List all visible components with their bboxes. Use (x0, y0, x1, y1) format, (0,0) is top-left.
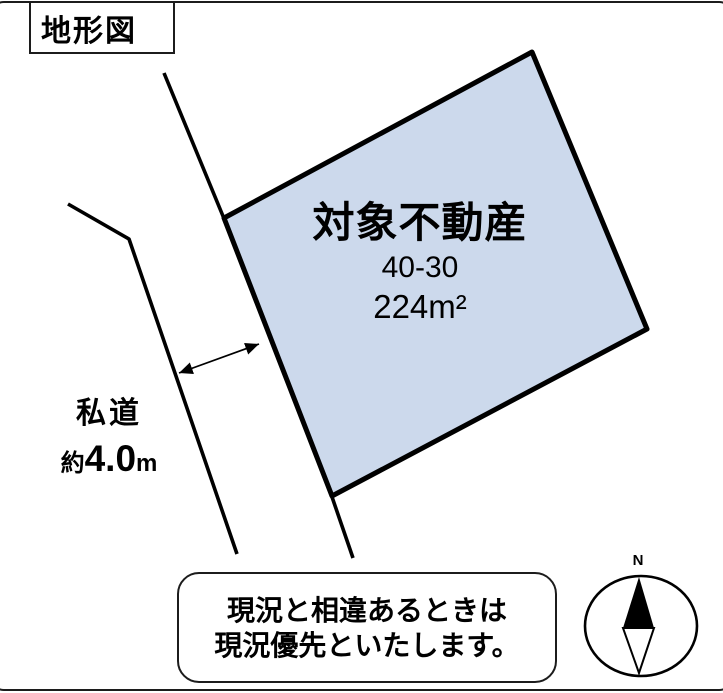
parcel-name: 対象不動産 (300, 202, 540, 244)
road-edge-left (68, 204, 237, 554)
road-width-label: 約4.0m (34, 440, 184, 477)
parcel-lot-number: 40-30 (300, 253, 540, 283)
road-edge-right-lower (331, 494, 353, 558)
compass-north-label: N (627, 552, 649, 569)
parcel-labels: 対象不動産 40-30 224m² (300, 202, 540, 323)
road-width-value: 4.0 (85, 438, 136, 479)
map-title: 地形図 (41, 6, 137, 50)
road-labels: 私道 約4.0m (34, 399, 184, 477)
road-name: 私道 (34, 399, 184, 429)
disclaimer-line2: 現況優先といたします。 (214, 628, 519, 663)
map-title-box: 地形図 (29, 1, 175, 54)
parcel-area-unit: m² (428, 288, 466, 325)
parcel-area-value: 224 (373, 288, 428, 325)
road-width-prefix: 約 (61, 450, 85, 477)
disclaimer-note-box: 現況と相違あるときは 現況優先といたします。 (177, 572, 557, 683)
road-width-unit: m (136, 450, 157, 477)
parcel-area: 224m² (300, 290, 540, 323)
disclaimer-line1: 現況と相違あるときは (227, 593, 507, 628)
road-edge-right-upper (164, 73, 225, 221)
land-shape-map: 地形図 対象不動産 40-30 224m² 私道 約4.0m 現況と相違あるとき… (0, 0, 723, 693)
road-width-arrow (179, 344, 259, 373)
compass-icon (585, 576, 697, 676)
